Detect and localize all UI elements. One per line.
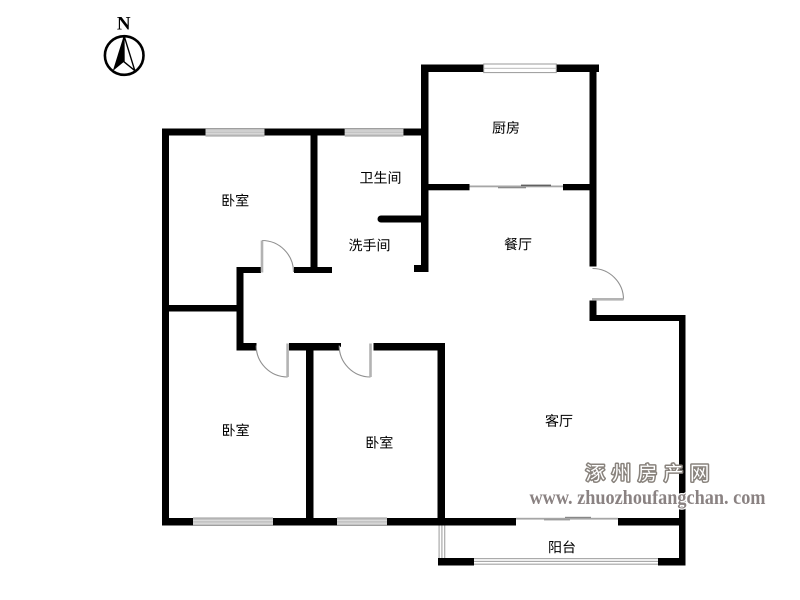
svg-text:www. zhuozhoufangchan. com: www. zhuozhoufangchan. com — [530, 488, 766, 509]
svg-text:N: N — [117, 14, 131, 35]
